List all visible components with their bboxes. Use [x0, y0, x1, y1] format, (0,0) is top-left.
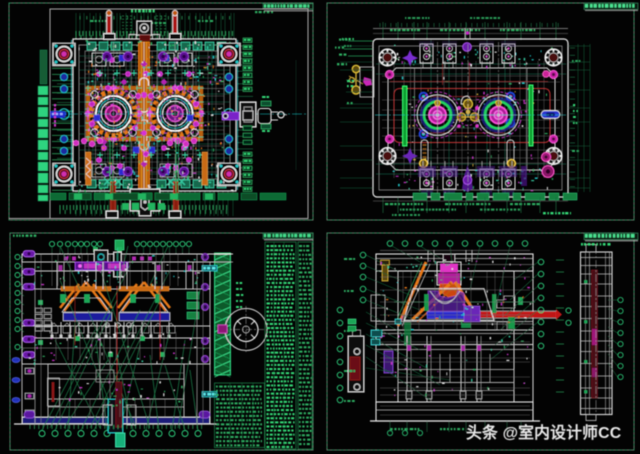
svg-text:头条 @室内设计师CC: 头条 @室内设计师CC: [466, 423, 621, 442]
